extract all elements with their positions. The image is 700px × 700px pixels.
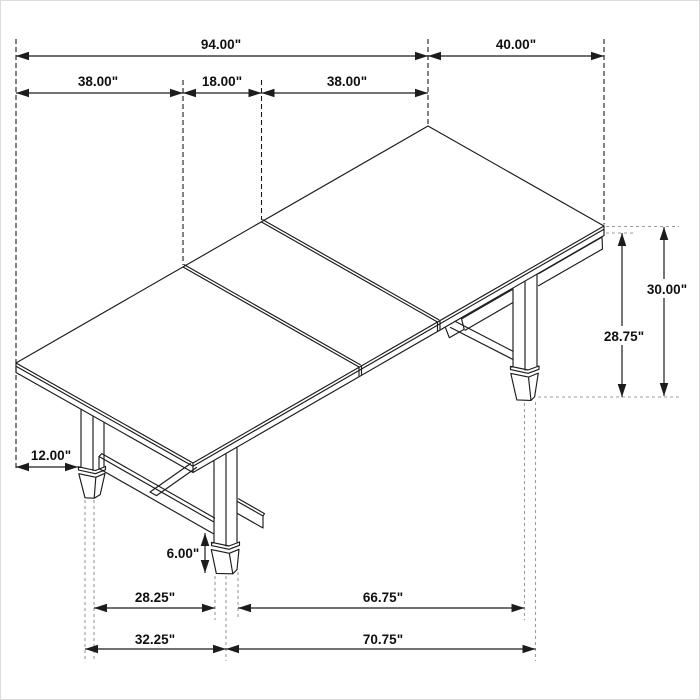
arrow: [170, 89, 183, 98]
brace-left: [150, 464, 197, 496]
leg-front: [211, 447, 239, 574]
dim-label-end-section-left: 38.00": [78, 74, 118, 89]
stretcher-right-beam: [451, 321, 514, 359]
arrow: [591, 52, 604, 61]
arrow: [238, 604, 251, 613]
stretcher-left-beam: [99, 454, 215, 534]
arrow: [16, 52, 29, 61]
arrow: [415, 52, 428, 61]
arrow: [262, 89, 275, 98]
dimension-diagram-canvas: 94.00" 40.00" 38.00" 18.00" 38.00" 30.00…: [0, 0, 700, 700]
arrow: [618, 233, 627, 246]
arrow: [213, 645, 226, 654]
leaf-seam-left: [183, 265, 362, 377]
dim-label-underside-clearance: 28.75": [604, 329, 644, 344]
stretcher-right: [445, 237, 602, 359]
tabletop: [16, 126, 604, 473]
arrow: [202, 604, 215, 613]
dim-label-tabletop-width: 40.00": [496, 37, 536, 52]
arrow: [249, 89, 262, 98]
dim-label-center-leaf: 18.00": [202, 74, 242, 89]
dim-label-foot-span-width-inner: 28.25": [135, 590, 175, 605]
arrow: [16, 463, 29, 472]
extension-lines: [16, 39, 604, 471]
leaf-seam-right: [262, 220, 441, 332]
dimension-arrowheads: [16, 52, 668, 654]
stretcher-left-tenon: [237, 499, 265, 528]
dim-label-overall-length: 94.00": [201, 37, 241, 52]
leg-right-foot: [511, 373, 539, 400]
arrow: [512, 604, 525, 613]
arrow: [660, 383, 669, 396]
arrow: [523, 645, 536, 654]
leg-front-foot: [211, 549, 239, 574]
dim-label-foot-height: 6.00": [167, 546, 200, 561]
table-dimension-diagram: 94.00" 40.00" 38.00" 18.00" 38.00" 30.00…: [1, 1, 700, 700]
dim-label-foot-span-length-inner: 66.75": [363, 590, 403, 605]
dim-label-foot-span-length-outer: 70.75": [363, 632, 403, 647]
dim-label-end-section-right: 38.00": [327, 74, 367, 89]
arrow: [226, 645, 239, 654]
dim-label-table-height: 30.00": [647, 282, 687, 297]
arrow: [660, 227, 669, 240]
leg-front-post: [214, 447, 237, 546]
leg-right: [511, 275, 540, 401]
arrow: [428, 52, 441, 61]
dim-label-top-overhang: 12.00": [31, 448, 71, 463]
arrow: [618, 384, 627, 397]
arrow: [85, 645, 98, 654]
tabletop-top-surface: [16, 126, 604, 463]
arrow: [65, 463, 78, 472]
leg-left-post: [81, 410, 104, 471]
arrow: [201, 533, 210, 546]
arrow: [94, 604, 107, 613]
leg-right-post: [513, 275, 537, 370]
leg-left-foot: [79, 473, 105, 498]
dim-label-foot-span-width-outer: 32.25": [135, 632, 175, 647]
dimension-lines: [16, 56, 664, 649]
arrow: [183, 89, 196, 98]
table-drawing: [16, 126, 604, 574]
dimension-labels: 94.00" 40.00" 38.00" 18.00" 38.00" 30.00…: [31, 37, 687, 647]
arrow: [415, 89, 428, 98]
slide-rails: [462, 237, 603, 330]
arrow: [16, 89, 29, 98]
arrow: [201, 560, 210, 573]
